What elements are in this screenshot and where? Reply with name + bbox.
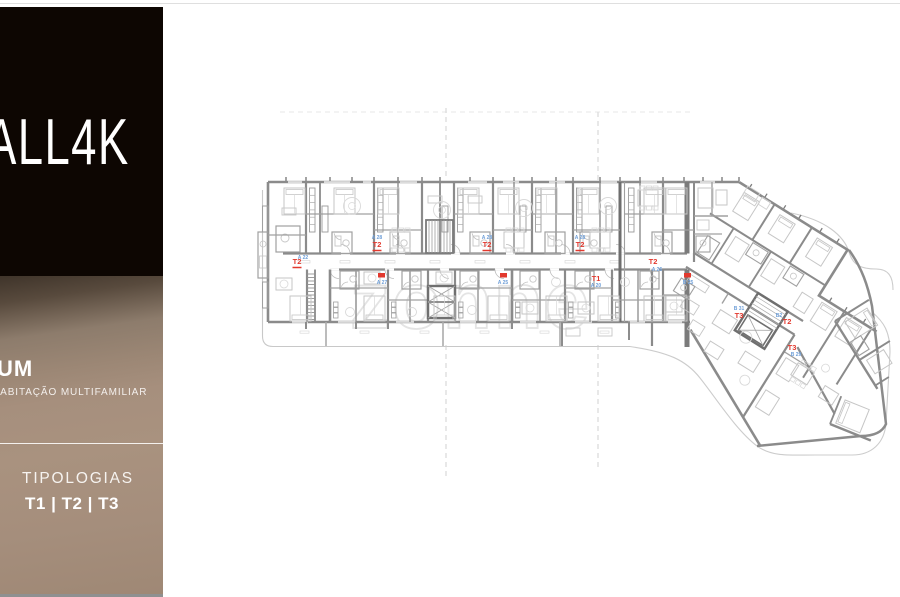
svg-text:A 22: A 22 (298, 255, 309, 261)
svg-text:B 31: B 31 (734, 306, 745, 312)
svg-text:A 28: A 28 (372, 235, 383, 241)
svg-text:A 28: A 28 (482, 235, 493, 241)
svg-text:T2: T2 (783, 317, 792, 326)
svg-text:T1: T1 (592, 274, 601, 283)
svg-text:B 29: B 29 (791, 352, 802, 358)
svg-text:T3: T3 (788, 343, 797, 352)
svg-text:A 26: A 26 (652, 267, 663, 273)
svg-text:T2: T2 (483, 240, 492, 249)
svg-text:T2: T2 (576, 240, 585, 249)
svg-text:A 25: A 25 (498, 280, 509, 286)
svg-text:A 20: A 20 (591, 283, 602, 289)
svg-text:A 28: A 28 (575, 235, 586, 241)
svg-text:B 25: B 25 (683, 280, 694, 286)
svg-text:T3: T3 (735, 311, 744, 320)
svg-text:T2: T2 (373, 240, 382, 249)
svg-text:A 27: A 27 (377, 280, 388, 286)
svg-text:B2: B2 (776, 313, 783, 319)
svg-text:T2: T2 (649, 257, 658, 266)
